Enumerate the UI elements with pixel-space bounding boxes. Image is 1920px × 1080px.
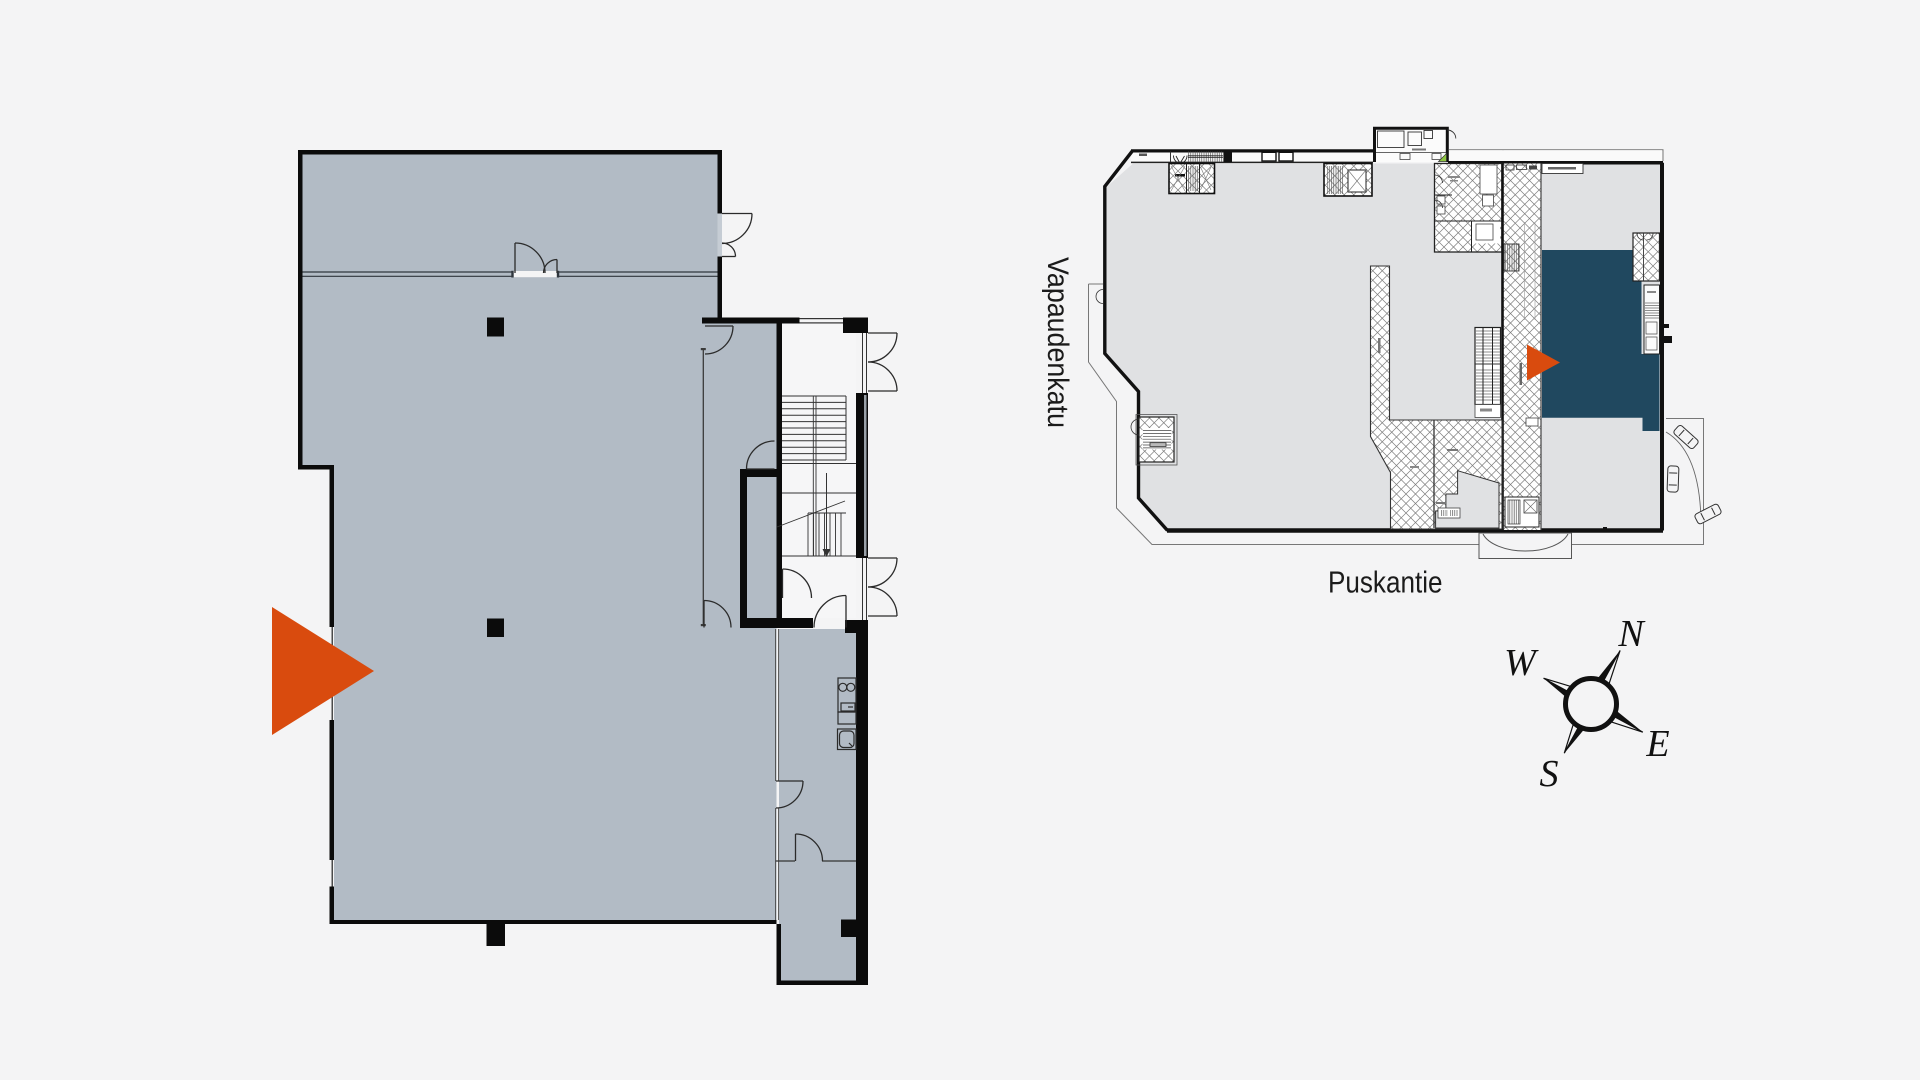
svg-text:E: E <box>1645 723 1669 765</box>
svg-text:Puskantie: Puskantie <box>1328 566 1443 600</box>
svg-text:W: W <box>1504 642 1539 684</box>
svg-text:N: N <box>1617 613 1646 655</box>
svg-text:S: S <box>1540 753 1559 795</box>
svg-text:Vapaudenkatu: Vapaudenkatu <box>1041 257 1074 428</box>
